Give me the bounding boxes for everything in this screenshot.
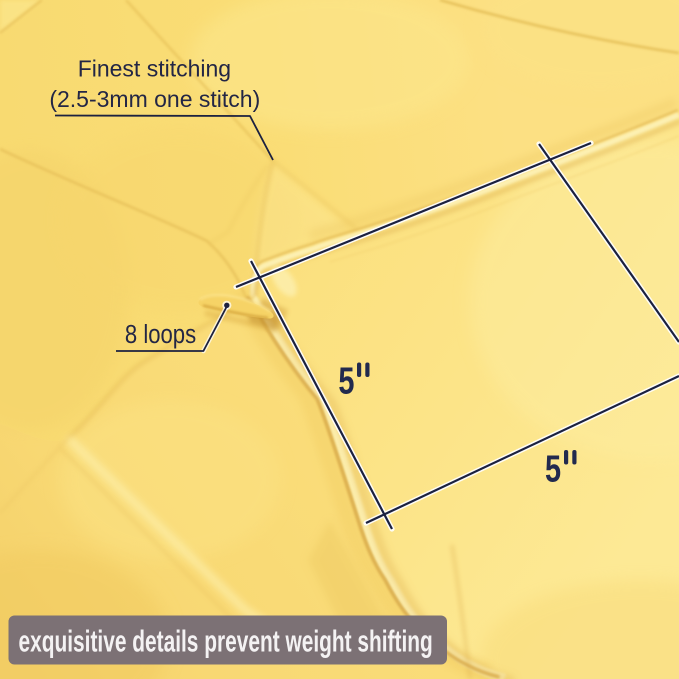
svg-text:5: 5 [338,360,354,403]
svg-text:5: 5 [545,448,561,491]
svg-text:exquisitive details prevent we: exquisitive details prevent weight shift… [19,624,433,659]
svg-text:8 loops: 8 loops [125,320,196,349]
svg-text:Finest stitching: Finest stitching [78,56,231,82]
svg-text:(2.5-3mm one stitch): (2.5-3mm one stitch) [49,86,260,112]
